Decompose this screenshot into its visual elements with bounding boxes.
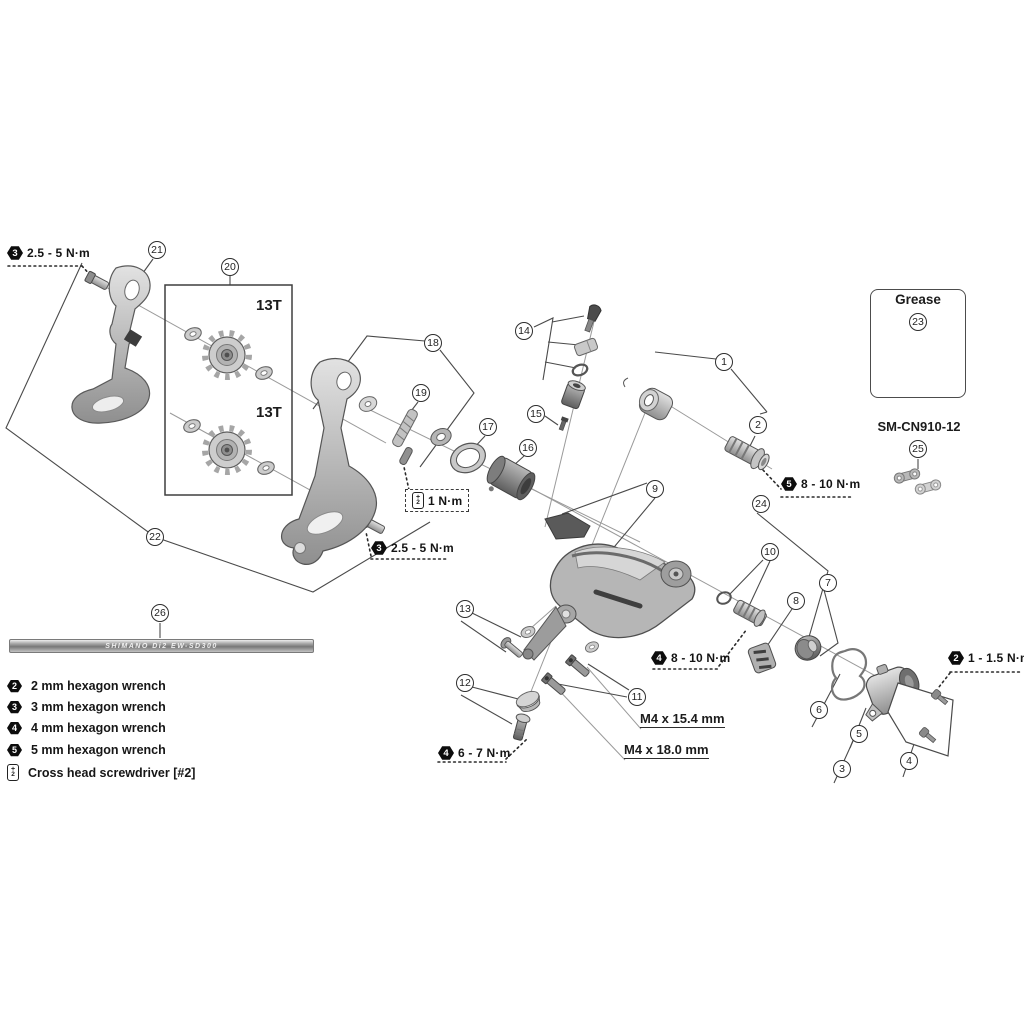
callout-26: 26 [151, 604, 169, 622]
callout-19: 19 [412, 384, 430, 402]
callout-14: 14 [515, 322, 533, 340]
callout-16: 16 [519, 439, 537, 457]
legend-row-2mm: 2 2 mm hexagon wrench [7, 679, 166, 693]
torque-stay-bolt: 4 6 - 7 N·m [438, 746, 510, 760]
hex-wrench-2-icon: 2 [7, 680, 22, 693]
callout-4: 4 [900, 752, 918, 770]
callout-6: 6 [810, 701, 828, 719]
spring-pin [399, 446, 414, 465]
hex-wrench-5-icon: 5 [781, 477, 797, 491]
parts-diagram-page: Grease SM-CN910-12 13T 13T M4 x 15.4 mm … [0, 0, 1024, 1024]
pulley-top-teeth-label: 13T [256, 297, 282, 314]
callout-1: 1 [715, 353, 733, 371]
pulley-bottom-teeth-label: 13T [256, 404, 282, 421]
seal-ring [446, 438, 490, 478]
o-ring-cable [715, 590, 732, 606]
snap-hook [624, 378, 628, 387]
legend-row-5mm: 5 5 mm hexagon wrench [7, 743, 166, 757]
callout-12: 12 [456, 674, 474, 692]
bolt-spec-label-a: M4 x 15.4 mm [640, 711, 725, 728]
torque-plate-bolt-bottom: 3 2.5 - 5 N·m [371, 541, 454, 555]
o-ring-small [571, 363, 589, 378]
torque-plate-bolt-top: 3 2.5 - 5 N·m [7, 246, 90, 260]
diagram-line-art [0, 0, 1024, 1024]
torque-bracket-axle: 5 8 - 10 N·m [781, 477, 860, 491]
tension-spring [391, 408, 419, 448]
quick-link-label: SM-CN910-12 [874, 419, 964, 434]
mount-bolts [541, 655, 591, 697]
wire-print-label: SHIMANO Di2 EW-SD300 [105, 643, 218, 650]
inner-plate [72, 266, 150, 423]
callout-23: 23 [909, 313, 927, 331]
clamp-plate [574, 338, 599, 357]
callout-25: 25 [909, 440, 927, 458]
cross-head-screwdriver-icon: +2 [412, 492, 424, 509]
callout-11: 11 [628, 688, 646, 706]
pulley-bottom [205, 428, 249, 472]
set-screw [558, 416, 569, 431]
hex-wrench-2-icon: 2 [948, 651, 964, 665]
callout-10: 10 [761, 543, 779, 561]
bracket-knuckle [635, 385, 675, 423]
nut-cylinder [561, 379, 587, 410]
hex-wrench-3-icon: 3 [7, 246, 23, 260]
hex-wrench-4-icon: 4 [651, 651, 667, 665]
callout-8: 8 [787, 592, 805, 610]
bracket-axle-bolt [722, 433, 772, 474]
pulley-top [205, 333, 249, 377]
callout-20: 20 [221, 258, 239, 276]
derailleur-body [523, 513, 695, 660]
grease-label: Grease [870, 292, 966, 307]
hex-wrench-5-icon: 5 [7, 744, 22, 757]
callout-13: 13 [456, 600, 474, 618]
torque-cover-screws: 2 1 - 1.5 N·m [948, 651, 1024, 665]
callout-17: 17 [479, 418, 497, 436]
callout-24: 24 [752, 495, 770, 513]
callout-3: 3 [833, 760, 851, 778]
legend-row-screwdriver: +2 Cross head screwdriver [#2] [7, 764, 195, 781]
bolt-spec-label-b: M4 x 18.0 mm [624, 742, 709, 759]
clutch-cylinder [480, 454, 538, 508]
adjust-cap [791, 632, 825, 665]
chain-quick-links [893, 468, 942, 495]
outer-plate [282, 359, 380, 565]
hex-wrench-3-icon: 3 [371, 541, 387, 555]
callout-9: 9 [646, 480, 664, 498]
callout-7: 7 [819, 574, 837, 592]
plate-bolt-top [84, 271, 109, 292]
torque-cable-unit: 4 8 - 10 N·m [651, 651, 730, 665]
torque-plate-screw: +2 1 N·m [405, 489, 469, 512]
hex-wrench-4-icon: 4 [7, 722, 22, 735]
stay-cap-and-bolt [511, 688, 544, 741]
legend-row-4mm: 4 4 mm hexagon wrench [7, 721, 166, 735]
electric-wire: SHIMANO Di2 EW-SD300 [9, 639, 314, 653]
callout-22: 22 [146, 528, 164, 546]
cover-plate [888, 683, 953, 756]
legend-row-3mm: 3 3 mm hexagon wrench [7, 700, 166, 714]
cable-fixing-barrel [732, 598, 769, 629]
cable-clamp [747, 642, 777, 674]
callout-21: 21 [148, 241, 166, 259]
bearing [428, 425, 454, 448]
callout-2: 2 [749, 416, 767, 434]
hex-wrench-4-icon: 4 [438, 746, 454, 760]
hex-wrench-3-icon: 3 [7, 701, 22, 714]
callout-15: 15 [527, 405, 545, 423]
callout-5: 5 [850, 725, 868, 743]
cross-head-screwdriver-icon: +2 [7, 764, 19, 781]
gasket-seal [832, 649, 866, 699]
callout-18: 18 [424, 334, 442, 352]
